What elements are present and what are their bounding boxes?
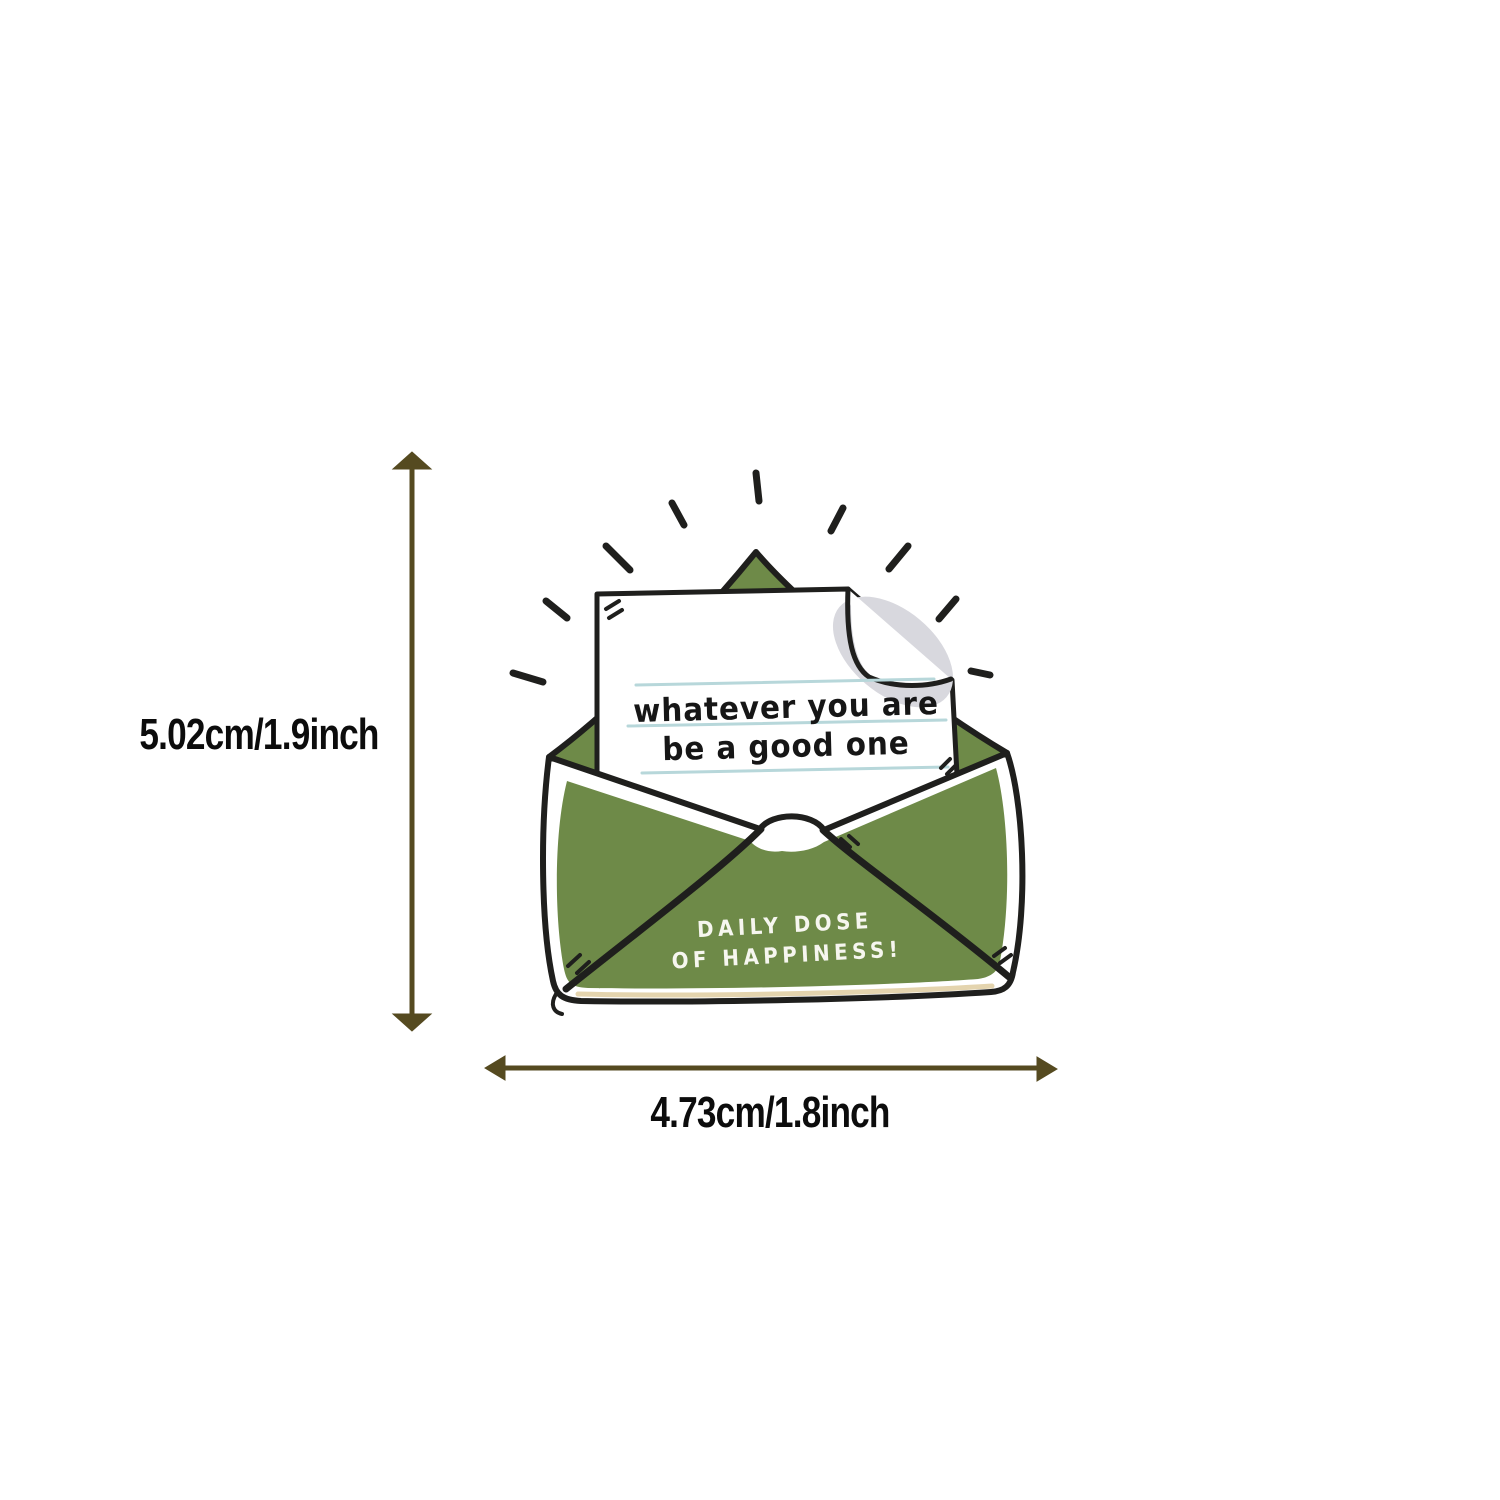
arrow-left-icon xyxy=(485,1056,505,1080)
letter-text-line1: whatever you are xyxy=(633,684,940,730)
width-dimension-arrow xyxy=(485,1056,1057,1081)
arrow-down-icon xyxy=(393,1014,431,1031)
product-dimension-figure: whatever you are be a good one DAILY DOS… xyxy=(0,0,1500,1500)
width-dimension-label: 4.73cm/1.8inch xyxy=(650,1088,889,1138)
height-dimension-arrow xyxy=(393,452,431,1031)
arrow-right-icon xyxy=(1037,1057,1057,1081)
height-dimension-label: 5.02cm/1.9inch xyxy=(139,710,378,760)
arrow-up-icon xyxy=(393,452,431,469)
letter-text-line2: be a good one xyxy=(662,724,910,768)
